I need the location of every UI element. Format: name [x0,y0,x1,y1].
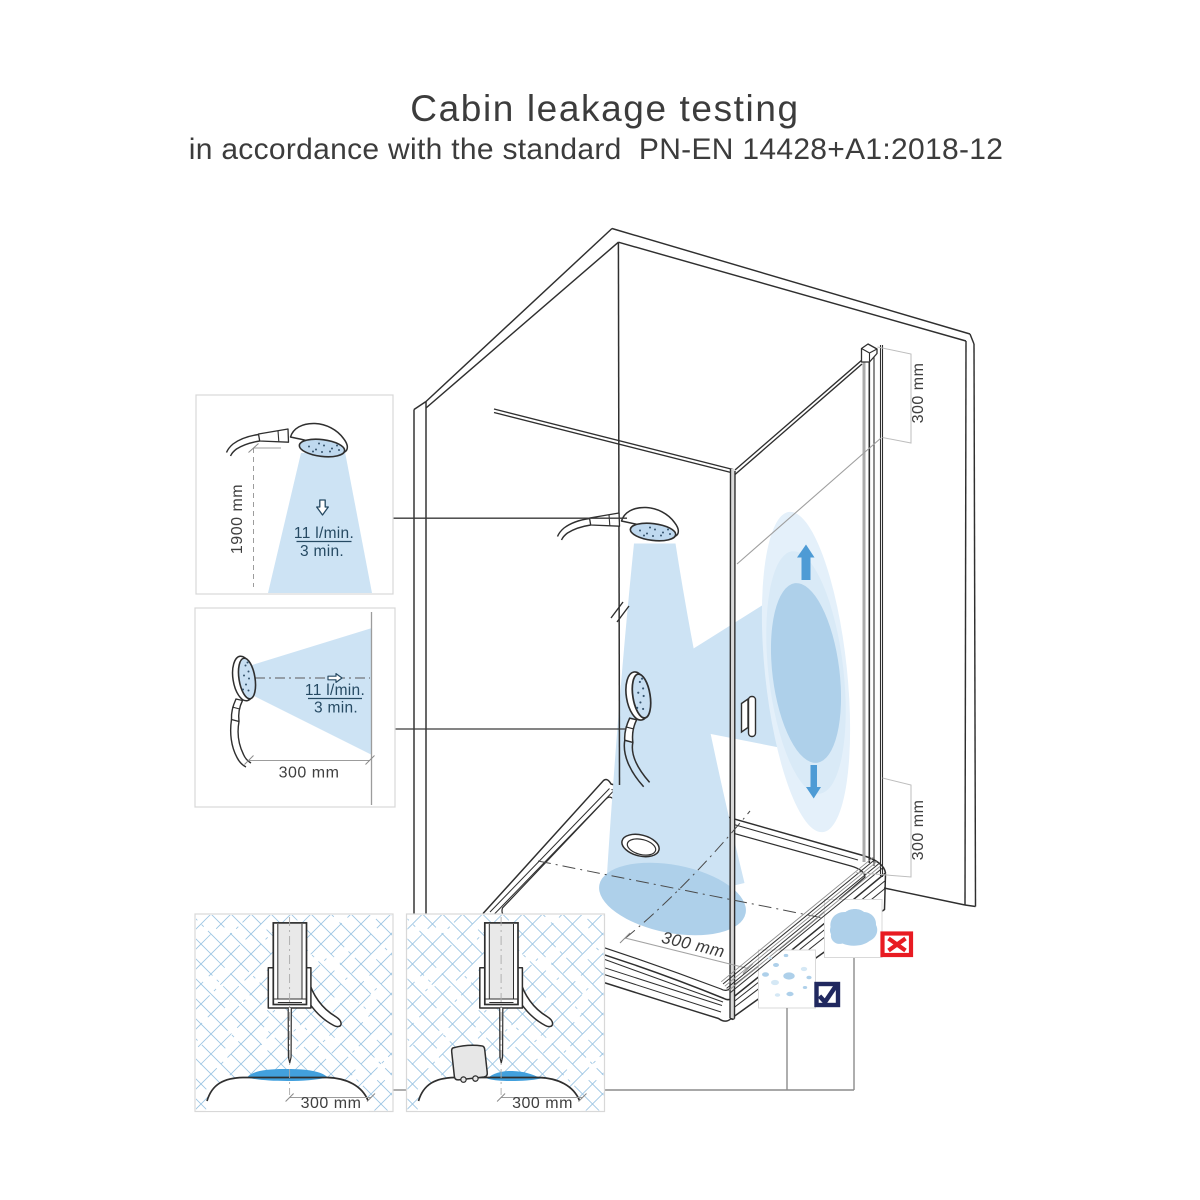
svg-text:300 mm: 300 mm [910,800,927,861]
svg-text:1900 mm: 1900 mm [229,484,246,554]
svg-text:Cabin leakage testing: Cabin leakage testing [410,88,799,129]
svg-text:in accordance with the standar: in accordance with the standard PN-EN 14… [189,133,1004,166]
svg-text:3 min.: 3 min. [314,700,358,717]
svg-text:300 mm: 300 mm [301,1095,362,1112]
svg-text:300 mm: 300 mm [512,1095,573,1112]
svg-text:11 l/min.: 11 l/min. [294,525,354,542]
svg-text:300 mm: 300 mm [910,363,927,424]
svg-text:11 l/min.: 11 l/min. [305,682,365,699]
svg-text:300 mm: 300 mm [279,765,340,782]
svg-text:3 min.: 3 min. [300,543,344,560]
